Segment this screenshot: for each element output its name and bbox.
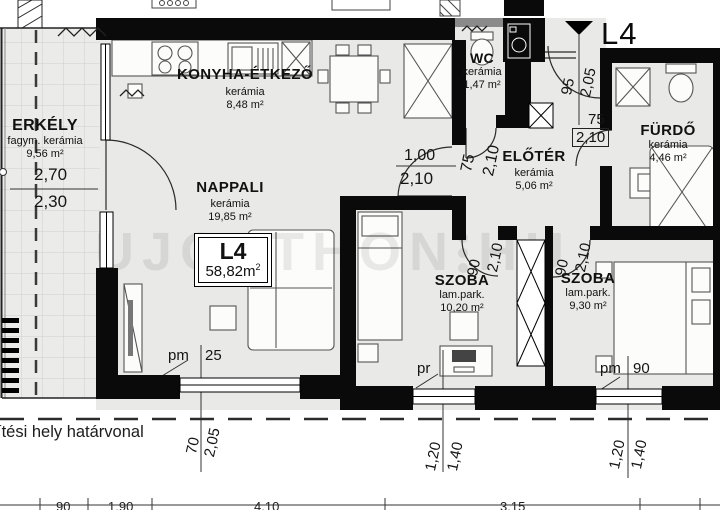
room-area: 5,06 m² — [482, 180, 586, 193]
room-label-nappali: NAPPALI kerámia 19,85 m² — [182, 179, 278, 224]
floor-plan: UJOTTHON HU — [0, 0, 720, 510]
room-label-furdo: FÜRDŐ kerámia 4,46 m² — [622, 122, 714, 165]
furdo-door-width: 75 — [588, 111, 605, 128]
left-window-lower — [100, 212, 113, 268]
room-name: WC — [452, 50, 512, 66]
nappali-window-value: 25 — [205, 347, 222, 364]
room-area: 9,56 m² — [4, 148, 86, 161]
szoba2-window-prefix: pm — [600, 360, 621, 377]
room-name: SZOBA — [412, 272, 512, 289]
bottom-tick-2: 1,90 — [108, 499, 133, 510]
desk-computer-icon — [440, 346, 492, 376]
bottom-tick-3: 4,10 — [254, 499, 279, 510]
unit-info-box: L4 58,82m2 — [194, 233, 272, 287]
room-name: ERKÉLY — [4, 117, 86, 135]
furdo-door-height: 2,10 — [572, 128, 609, 147]
szoba1-window — [413, 389, 475, 404]
bottom-tick-1: 90 — [56, 499, 70, 510]
room-label-szoba1: SZOBA lam.park. 10,20 m² — [412, 272, 512, 315]
room-area: 19,85 m² — [182, 211, 278, 224]
room-material: lam.park. — [412, 289, 512, 302]
room-material: kerámia — [452, 66, 512, 79]
unit-code: L4 — [220, 240, 247, 263]
unit-area-sup: 2 — [256, 262, 261, 272]
boundary-label: ítési hely határvonal — [0, 423, 144, 442]
unit-area: 58,82m — [205, 263, 255, 280]
entry-unit-label: L4 — [601, 16, 637, 52]
wc-door-width: 75 — [458, 153, 479, 174]
bottom-left-dim-1: 70 — [183, 436, 203, 456]
room-name: KONYHA-ÉTKEZŐ — [164, 66, 326, 83]
szoba2-window — [596, 389, 662, 404]
room-label-konyha: KONYHA-ÉTKEZŐ kerámia 8,48 m² — [164, 66, 326, 112]
nappali-window — [180, 378, 300, 392]
room-area: 8,48 m² — [164, 99, 326, 112]
room-material: fagym. kerámia — [4, 135, 86, 148]
tall-cabinet-icon — [404, 44, 452, 118]
room-name: FÜRDŐ — [622, 122, 714, 139]
room-label-erkely: ERKÉLY fagym. kerámia 9,56 m² — [4, 117, 86, 161]
room-material: kerámia — [164, 86, 326, 99]
room-area: 10,20 m² — [412, 302, 512, 315]
top-left-hatch — [18, 0, 42, 28]
nappali-door-width: 1,00 — [404, 147, 435, 165]
szoba1-window-prefix: pr — [417, 360, 430, 377]
szoba2-door-width: 90 — [552, 258, 572, 278]
nappali-door-height: 2,10 — [400, 169, 433, 189]
shaft-column-icon — [529, 103, 553, 128]
bottom-tick-4: 3,15 — [500, 499, 525, 510]
nightstand1-icon — [358, 344, 378, 362]
room-material: kerámia — [622, 139, 714, 152]
room-area: 1,47 m² — [452, 79, 512, 92]
armchair-icon — [450, 312, 478, 340]
room-area: 4,46 m² — [622, 152, 714, 165]
room-label-szoba2: SZOBA lam.park. 9,30 m² — [538, 270, 638, 313]
szoba2-window-value: 90 — [633, 360, 650, 377]
room-name: NAPPALI — [182, 179, 278, 196]
room-material: lam.park. — [538, 287, 638, 300]
balcony-dim-2: 2,30 — [34, 192, 67, 212]
room-label-wc: WC kerámia 1,47 m² — [452, 50, 512, 91]
room-material: kerámia — [182, 198, 278, 211]
szoba1-door-width: 90 — [464, 258, 484, 278]
nappali-window-prefix: pm — [168, 347, 189, 364]
washing-machine-icon — [616, 68, 650, 106]
watermark-left: UJOTTHON — [95, 222, 456, 282]
coffee-table-icon — [210, 306, 236, 330]
left-window-upper — [101, 44, 110, 140]
tv-board-icon — [124, 284, 142, 372]
balcony-dim-1: 2,70 — [34, 165, 67, 185]
entry-door-width: 95 — [558, 77, 578, 97]
room-area: 9,30 m² — [538, 300, 638, 313]
